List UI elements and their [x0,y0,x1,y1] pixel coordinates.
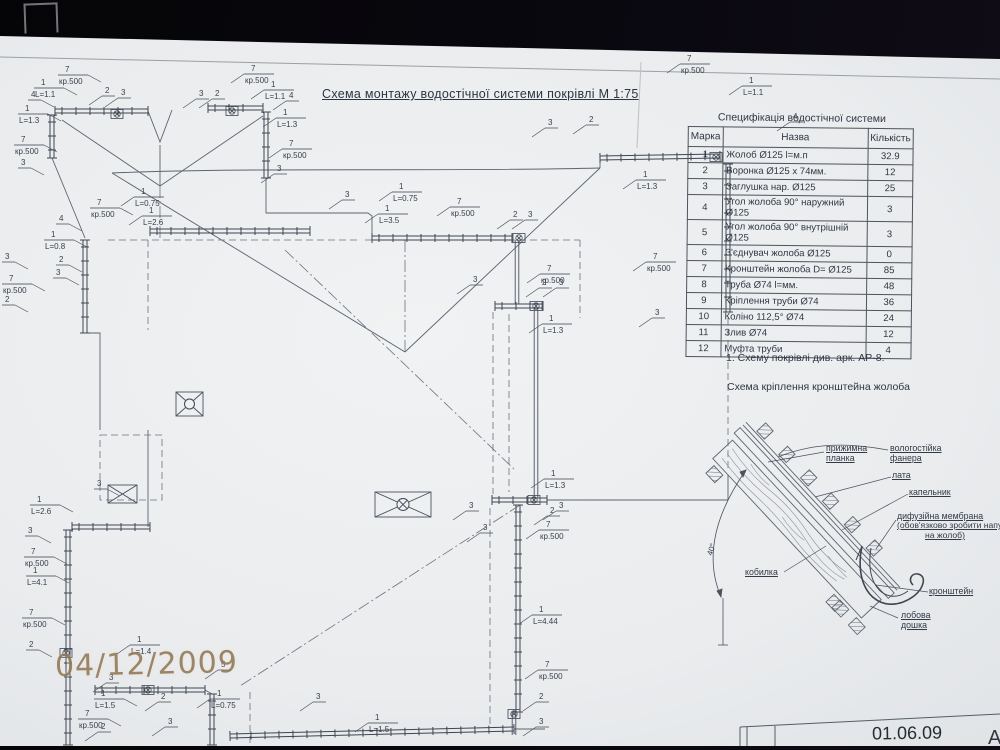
spec-cell: 85 [866,263,912,279]
callout-leader [519,615,532,624]
callout-dimension: L=1.5 [95,701,116,710]
plan-callout: 1L=0.75 [379,182,422,203]
callout-leader [60,505,73,512]
callout-marker: 2 [5,295,10,304]
plan-callout: 1L=2.6 [30,495,73,516]
plan-callout: 7кр.500 [527,264,570,285]
plan-callout: 3 [467,523,493,542]
plan-callout: 1L=4.1 [26,566,69,587]
spec-cell: 36 [866,295,912,311]
callout-leader [88,75,101,82]
titleblock-letter: А [988,727,1000,750]
callout-leader [129,216,142,225]
callout-dimension: кр.500 [451,209,475,218]
callout-marker: 1 [551,469,556,478]
callout-marker: 3 [528,210,533,219]
callout-leader [120,208,133,215]
plan-callout: 1L=1.1 [729,76,772,97]
callout-leader [107,489,120,496]
spec-cell: Угол жолоба 90° внутрішній Ø125 [722,220,867,247]
spec-col-header: Кількість [868,128,914,148]
spec-cell: Кріплення труби Ø74 [721,293,866,311]
callout-marker: 1 [149,206,154,215]
callout-marker: 7 [546,520,551,529]
callout-dimension: L=1.1 [743,88,764,97]
label-batten: лата [892,470,911,480]
plan-callout: 2 [573,115,599,134]
callout-marker: 1 [141,187,146,196]
plan-callout: 2 [2,295,28,312]
plan-callout: 2 [89,86,115,105]
callout-leader [15,305,28,312]
spec-cell: 32.9 [867,148,913,164]
spec-cell: Труба Ø74 l=мм. [721,277,866,295]
plan-callout: 3 [639,308,665,327]
gutter-run [150,226,310,236]
callout-marker: 7 [653,252,658,261]
callout-leader [543,288,556,297]
gutter-run [513,505,523,712]
photo-of-drawing: { "main_title": "Схема монтажу водостічн… [0,0,1000,746]
plan-callout: 7кр.500 [231,64,274,85]
callout-marker: 3 [655,308,660,317]
spec-cell: 1 [688,147,723,163]
callout-leader [105,98,118,107]
callout-leader [41,100,54,107]
plan-callout: 7кр.500 [2,274,45,295]
callout-dimension: кр.500 [79,721,103,730]
callout-marker: 3 [121,88,126,97]
callout-marker: 4 [289,91,294,100]
callout-marker: 1 [399,182,404,191]
callout-dimension: L=1.1 [265,92,286,101]
callout-marker: 1 [41,78,46,87]
plan-callout: 3 [94,479,120,496]
callout-marker: 1 [33,566,38,575]
callout-leader [121,197,134,206]
callout-marker: 7 [289,139,294,148]
plan-callout: 7кр.500 [526,520,569,541]
callout-dimension: L=0.75 [135,199,160,208]
downpipe [515,240,519,304]
label-plywood: вологостійка фанера [890,443,964,463]
spec-cell: 4 [687,195,722,220]
plan-callout: 3 [18,158,44,175]
spec-cell: Заглушка нар. Ø125 [722,179,867,197]
callout-marker: 3 [97,479,102,488]
callout-marker: 3 [483,523,488,532]
spec-cell: Угол жолоба 90° наружний Ø125 [722,195,867,222]
gutter-run [80,240,90,333]
callout-marker: 7 [31,547,36,556]
callout-dimension: L=2.6 [143,218,164,227]
plan-callout: 7кр.500 [633,252,676,273]
camera-date-stamp: 04/12/2009 [55,646,239,685]
callout-dimension: L=1.3 [637,182,658,191]
spec-cell: Воронка Ø125 х 74мм. [723,163,868,181]
spec-cell: 9 [686,293,721,309]
callout-dimension: кр.500 [91,210,115,219]
callout-dimension: кр.500 [283,151,307,160]
callout-marker: 3 [199,89,204,98]
plan-callout: 1L=1.3 [529,314,572,335]
callout-dimension: кр.500 [245,76,269,85]
callout-marker: 1 [101,689,106,698]
spec-cell: 8 [687,277,722,293]
callout-marker: 7 [9,274,14,283]
label-rafter: кобилка [745,567,778,577]
callout-leader [729,86,742,95]
callout-marker: 1 [37,495,42,504]
callout-leader [108,719,121,726]
callout-dimension: L=0.8 [45,242,66,251]
callout-marker: 2 [542,278,547,287]
callout-leader [197,699,210,708]
callout-leader [437,207,450,216]
callout-marker: 1 [375,713,380,722]
callout-dimension: кр.500 [539,672,563,681]
callout-marker: 2 [539,692,544,701]
callout-leader [329,200,342,209]
spec-cell: 0 [866,247,912,263]
spec-cell: 5 [687,220,722,245]
callout-leader [527,274,540,283]
spec-cell: 6 [687,245,722,261]
callout-marker: 1 [283,108,288,117]
valley-lines [160,186,520,686]
gutter-run [261,112,271,178]
callout-marker: 3 [539,717,544,726]
angle-value: 40° [705,542,717,556]
spec-cell: Коліно 112,5° Ø74 [721,309,866,327]
label-drip-edge: капельник [909,487,951,497]
callout-marker: 2 [29,640,34,649]
callout-marker: 7 [65,65,70,74]
callout-dimension: L=0.75 [393,194,418,203]
callout-leader [573,125,586,134]
detail-title: Схема кріплення кронштейна жолоба [727,381,910,393]
callout-marker: 3 [559,501,564,510]
callout-marker: 7 [457,197,462,206]
spec-cell: З'єднувач жолоба Ø125 [722,245,867,263]
callout-dimension: кр.500 [647,264,671,273]
callout-leader [15,262,28,269]
plan-callout: 1L=3.5 [365,204,408,225]
callout-leader [269,149,282,158]
callout-dimension: L=2.6 [31,507,52,516]
plan-callout: 3 [329,190,355,209]
funnel-icon [226,107,238,116]
callout-dimension: L=1.5 [369,725,390,734]
spec-row: 4Угол жолоба 90° наружний Ø1253 [687,195,912,222]
callout-leader [74,240,87,247]
callout-marker: 7 [29,608,34,617]
callout-leader [32,284,45,291]
plan-callout: 7кр.500 [22,608,65,629]
callout-marker: 1 [385,204,390,213]
callout-leader [633,262,646,271]
callout-marker: 2 [513,210,518,219]
spec-table-grid: МаркаНазваКількість 1Жолоб Ø125 l=м.п32.… [685,126,913,359]
callout-leader [623,180,636,189]
callout-marker: 2 [589,115,594,124]
callout-leader [529,324,542,333]
spec-cell: 12 [867,164,913,180]
callout-marker: 3 [277,164,282,173]
callout-dimension: кр.500 [23,620,47,629]
callout-marker: 1 [25,104,30,113]
callout-leader [152,727,165,736]
plan-callout: 3 [25,526,51,543]
plan-callout: 7кр.500 [24,547,67,568]
plan-callout: 3 [523,717,549,736]
gutter-run [72,522,150,532]
spec-cell: Злив Ø74 [721,325,866,343]
callout-leader [52,618,65,625]
gutter-run [55,106,148,116]
plan-callout: 7кр.500 [525,660,568,681]
funnel-icon [508,710,520,719]
plan-callout: 7кр.500 [437,197,480,218]
callout-marker: 2 [215,89,220,98]
callout-leader [526,288,539,297]
plan-callout: 2 [497,210,523,229]
plan-callout: 3 [532,118,558,137]
callout-leader [89,96,102,105]
callout-dimension: кр.500 [15,147,39,156]
roof-plan: 7кр.5001L=1.141L=1.323327кр.5001L=1.141L… [2,54,803,745]
spec-cell: 10 [686,309,721,325]
label-membrane-note-2: на жолоб) [925,531,1000,541]
label-fascia-board: лобова дошка [901,610,947,630]
callout-marker: 3 [168,717,173,726]
callout-dimension: L=3.5 [379,216,400,225]
callout-marker: 7 [21,135,26,144]
skylight-icon [375,492,431,517]
callout-marker: 1 [217,689,222,698]
plan-callout: 2 [523,692,549,711]
callout-leader [38,536,51,543]
spec-cell: 11 [686,325,721,341]
callout-dimension: кр.500 [681,66,705,75]
spec-cell: 48 [866,279,912,295]
callout-leader [379,192,392,201]
callout-marker: 4 [31,90,36,99]
plan-callout: 3 [183,89,209,108]
spec-cell: 24 [866,311,912,327]
angle-arc [713,470,746,645]
label-bracket: кронштейн [929,586,973,596]
spec-col-header: Марка [688,127,723,147]
callout-dimension: кр.500 [540,532,564,541]
funnel-icon [111,110,123,119]
callout-leader [467,533,480,542]
callout-dimension: L=4.44 [533,617,558,626]
gutter-run [372,233,512,243]
skylight-symbols [108,392,431,517]
callout-marker: 7 [251,64,256,73]
callout-leader [526,530,539,539]
callout-marker: 2 [161,692,166,701]
callout-marker: 2 [101,722,106,731]
spec-cell: 25 [867,180,913,196]
callout-marker: 2 [59,255,64,264]
callout-leader [512,220,525,229]
callout-leader [525,670,538,679]
spec-row: 5Угол жолоба 90° внутрішній Ø1253 [687,220,912,247]
titleblock-date: 01.06.09 [872,723,942,745]
callout-dimension: кр.500 [3,286,27,295]
callout-dimension: кр.500 [59,77,83,86]
spec-cell: 3 [867,196,913,222]
callout-marker: 3 [316,692,321,701]
callout-dimension: L=1.3 [277,120,298,129]
callout-leader [69,265,82,272]
spec-cell: 7 [687,261,722,277]
callout-marker: 3 [473,275,478,284]
callout-dimension: L=0.75 [211,701,236,710]
callout-leader [64,88,77,95]
label-membrane: дифузійна мембрана (обов'язково зробити … [897,511,1000,541]
drawing-title: Схема монтажу водостічної системи покрів… [322,87,639,101]
callout-leader [251,90,264,99]
callout-marker: 3 [559,278,564,287]
plan-callout: 1L=4.44 [519,605,562,626]
funnel-icon [530,302,542,311]
callout-leader [145,702,158,711]
callout-leader [497,220,510,229]
callout-marker: 7 [547,264,552,273]
spec-cell: Кронштейн жолоба D= Ø125 [721,261,866,279]
spec-cell: 3 [867,222,913,248]
callout-marker: 3 [56,268,61,277]
skylight-icon [176,392,203,416]
spec-col-header: Назва [723,127,868,149]
spec-table: Специфікація водостічної системи МаркаНа… [685,111,916,360]
callout-leader [39,650,52,657]
plan-callout: 7кр.500 [78,709,121,730]
spec-cell: 12 [866,327,912,343]
callout-marker: 7 [687,54,692,63]
wood-grain [720,447,852,587]
callout-marker: 3 [28,526,33,535]
gutter-run [492,495,547,505]
callout-leader [639,318,652,327]
spec-cell: 3 [688,179,723,195]
gutter-run [95,685,205,695]
callout-marker: 1 [539,605,544,614]
callout-marker: 7 [545,660,550,669]
callout-marker: 7 [97,198,102,207]
plan-callout: 4 [56,214,82,231]
callout-leader [523,702,536,711]
spec-cell: 12 [686,341,721,357]
callout-dimension: L=1.3 [545,481,566,490]
plan-callout: 3 [453,501,479,520]
downpipe [534,308,538,498]
callout-marker: 1 [271,80,276,89]
callout-marker: 7 [85,709,90,718]
callout-leader [183,99,196,108]
plan-callout: 1L=2.6 [129,206,172,227]
callout-marker: 3 [548,118,553,127]
spec-cell: 2 [688,163,723,179]
callout-dimension: L=4.1 [27,578,48,587]
callout-marker: 1 [643,170,648,179]
callout-leader [66,278,79,285]
callout-leader [85,732,98,741]
callout-leader [199,99,212,108]
plan-callout: 2 [26,640,52,657]
plan-callout: 3 [152,717,178,736]
callout-leader [532,128,545,137]
callout-marker: 1 [51,230,56,239]
plan-callout: 7кр.500 [90,198,133,219]
callout-leader [54,557,67,564]
gutter-run [63,530,73,745]
callout-leader [300,702,313,711]
callout-marker: 3 [5,252,10,261]
plan-callout: 3 [261,164,287,183]
callout-dimension: L=1.1 [35,90,56,99]
callout-marker: 3 [21,158,26,167]
callout-leader [124,699,137,706]
spec-cell: Жолоб Ø125 l=м.п [723,147,868,165]
callout-leader [31,168,44,175]
callout-marker: 3 [469,501,474,510]
callout-leader [523,727,536,736]
label-press-plank: прижимна планка [826,443,888,463]
callout-dimension: L=1.3 [543,326,564,335]
callout-marker: 3 [345,190,350,199]
callout-dimension: L=1.3 [19,116,40,125]
sheet-note: 1. Схему покрівлі див. арк. АР-8. [726,352,885,364]
plan-callout: 3 [300,692,326,711]
spec-table-title: Специфікація водостічної системи [688,111,916,125]
plan-callout: 1L=0.75 [121,187,164,208]
plan-callout: 1L=1.3 [623,170,666,191]
callout-leader [231,74,244,83]
plan-callout: 7кр.500 [269,139,312,160]
callout-marker: 1 [749,76,754,85]
callout-marker: 2 [105,86,110,95]
callout-marker: 1 [137,635,142,644]
plan-callout: 3 [2,252,28,269]
plan-callout: 7кр.500 [14,135,57,156]
plan-callout: 7кр.500 [58,65,101,86]
callout-leader [453,511,466,520]
callout-marker: 4 [59,214,64,223]
callout-marker: 1 [549,314,554,323]
plan-callout: 3 [53,268,79,285]
